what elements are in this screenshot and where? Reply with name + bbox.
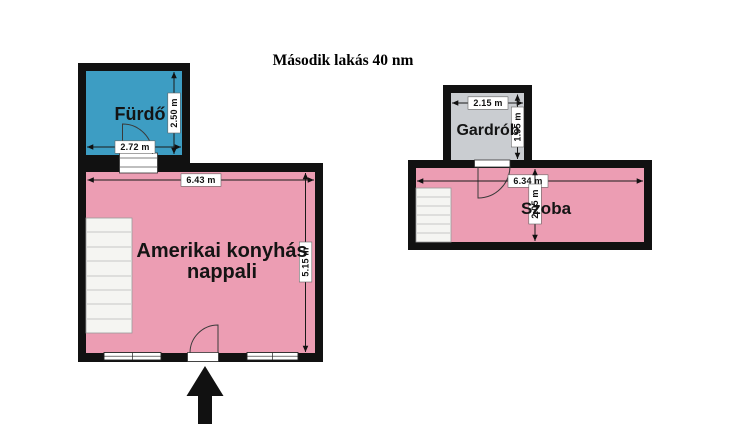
- bathroom-height-label: 2.50 m: [169, 98, 179, 127]
- stairs: [86, 218, 132, 333]
- wardrobe-name: Gardrób: [456, 122, 519, 139]
- bathroom-name: Fürdő: [115, 104, 166, 124]
- living-room-window-right: [247, 353, 298, 361]
- living-width-label: 6.43 m: [186, 175, 215, 185]
- living-room-name-line2: nappali: [187, 261, 257, 283]
- living-room-name-line1: Amerikai konyhás: [136, 240, 307, 262]
- entrance-door-opening: [188, 353, 219, 362]
- wardrobe-width-label: 2.15 m: [473, 98, 502, 108]
- room-name: Szoba: [521, 199, 572, 218]
- room-stairs: [416, 188, 451, 242]
- living-room-window-left: [104, 353, 161, 361]
- floor-plan-canvas: Második lakás 40 nm: [0, 0, 730, 437]
- bathroom-door-opening: [120, 153, 158, 173]
- floor-plan-page: Második lakás 40 nm: [0, 0, 730, 437]
- wardrobe-door-opening: [475, 160, 511, 167]
- plan-title: Második lakás 40 nm: [273, 52, 414, 69]
- bathroom-width-label: 2.72 m: [120, 142, 149, 152]
